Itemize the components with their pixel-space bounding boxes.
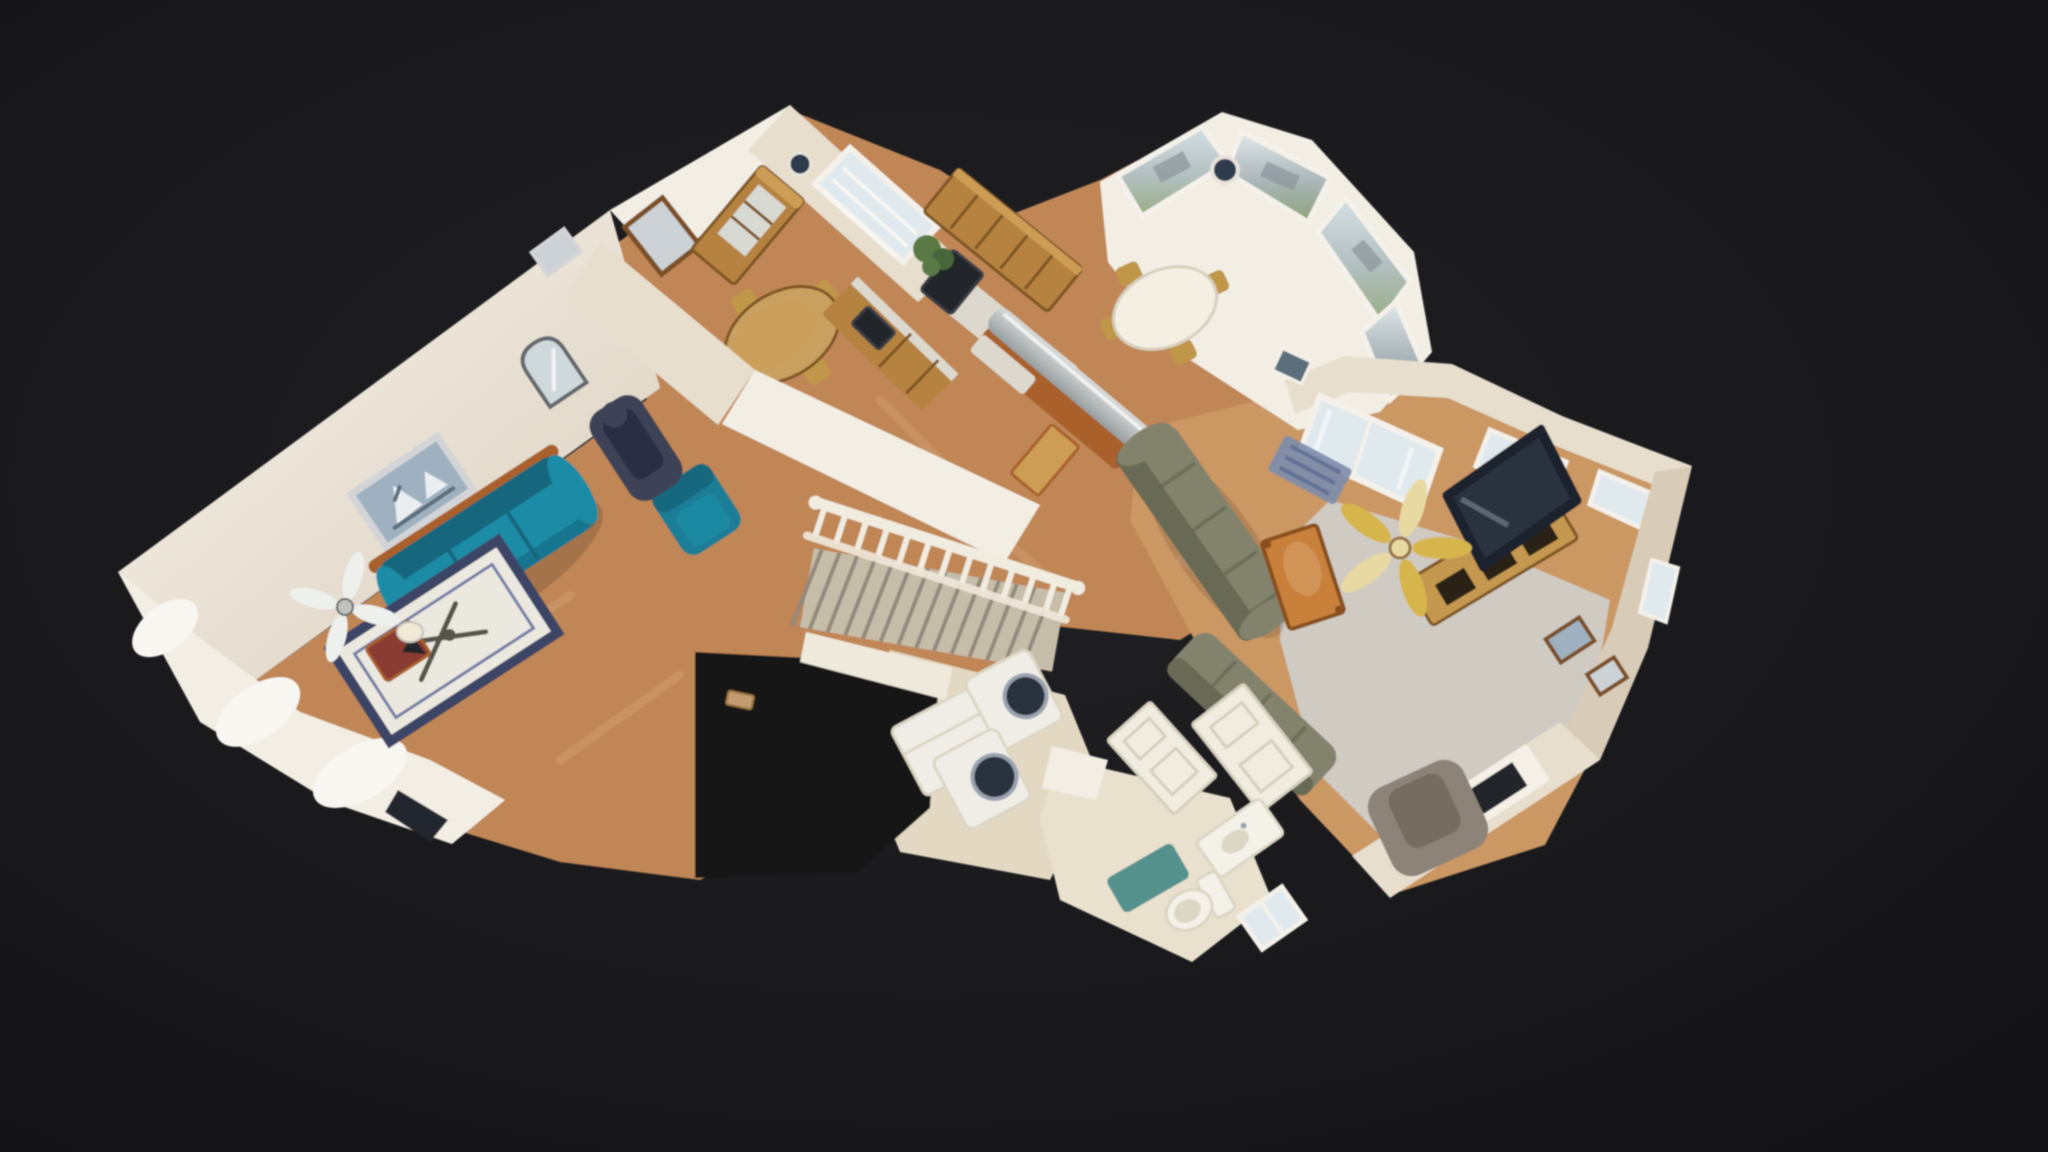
nook-wall-clock — [1212, 157, 1238, 183]
wall-plate-clock — [789, 153, 811, 175]
viewer-stage — [0, 0, 2048, 1152]
dollhouse-3d-view[interactable] — [0, 0, 2048, 1152]
